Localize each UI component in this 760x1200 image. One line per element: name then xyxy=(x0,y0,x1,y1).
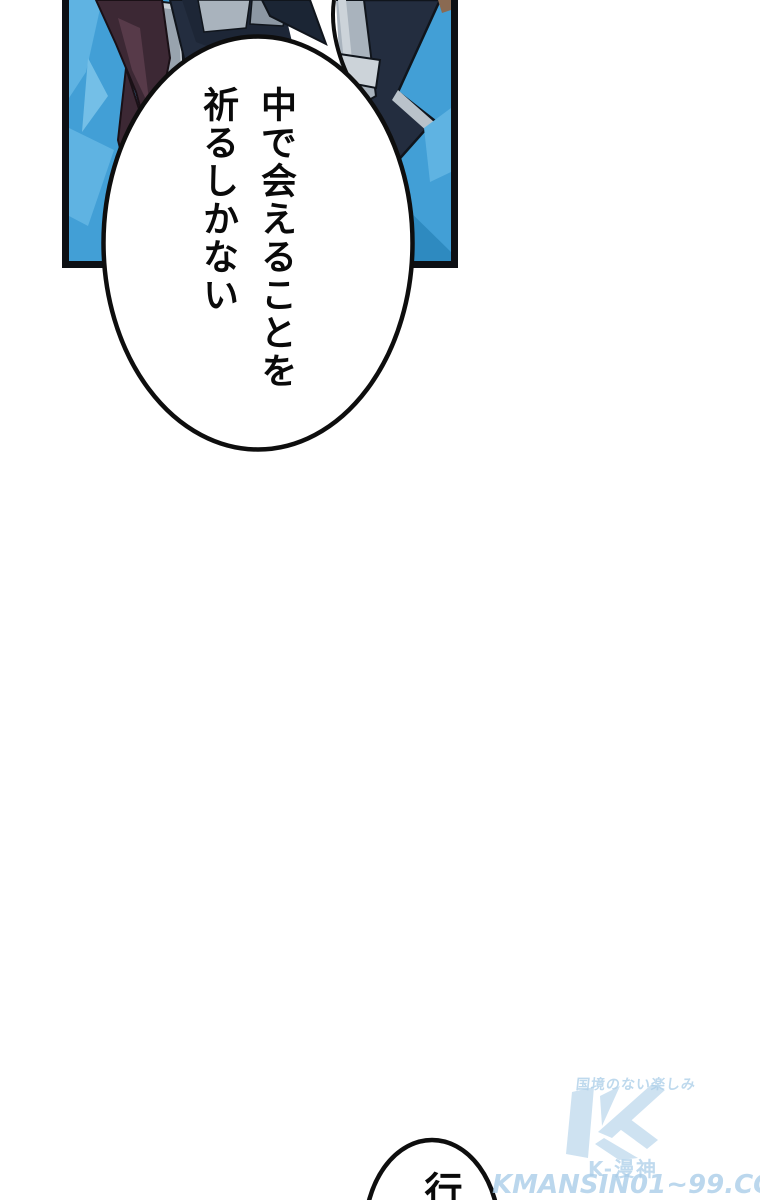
speech-text-line-1: 中で会えることを xyxy=(246,86,304,416)
panel-art xyxy=(0,0,760,1200)
watermark-site-url: KMANSIN01~99.COM xyxy=(492,1170,760,1200)
speech-text-main: 中で会えることを 祈るしかない xyxy=(188,86,304,416)
speech-text-bottom: 行 xyxy=(413,1171,468,1200)
watermark-k-logo-icon xyxy=(566,1084,665,1160)
speech-text-line-2: 祈るしかない xyxy=(188,86,246,416)
manga-page: 中で会えることを 祈るしかない 行 国境のない楽しみ K-漫神 KMANSIN0… xyxy=(0,0,760,1200)
watermark-tagline: 国境のない楽しみ xyxy=(575,1074,697,1094)
